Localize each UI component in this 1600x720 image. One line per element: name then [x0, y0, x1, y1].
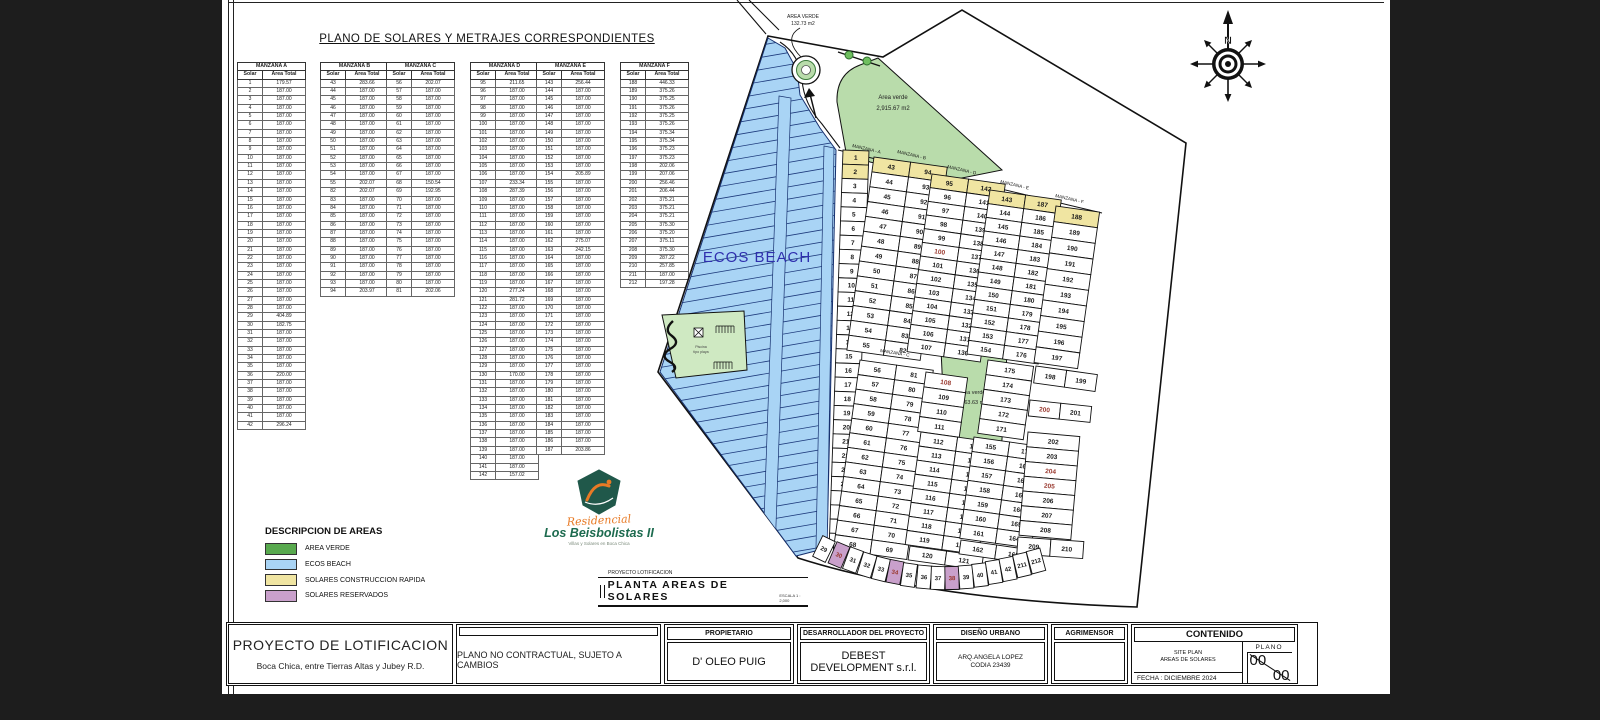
tree-icon — [845, 51, 853, 59]
lot-number: 208 — [1040, 527, 1052, 535]
lot-number: 44 — [885, 179, 894, 187]
lot-number: 70 — [887, 532, 896, 540]
lot-number: 3 — [853, 183, 857, 190]
lot-number: 66 — [853, 512, 862, 520]
lot-number: 203 — [1046, 453, 1058, 461]
lot-number: 98 — [939, 221, 948, 229]
lot-number: 73 — [893, 488, 902, 496]
lot-number: 77 — [902, 430, 911, 438]
lot-number: 92 — [920, 199, 929, 207]
lot-number: 86 — [907, 288, 916, 296]
lot-number: 74 — [895, 474, 904, 482]
lot-number: 99 — [937, 235, 946, 243]
manzana-column: 108109110111 — [918, 372, 968, 437]
lot-number: 43 — [887, 164, 896, 172]
lot-number: 1 — [854, 155, 858, 162]
lot-number: 204 — [1045, 468, 1057, 476]
lot-number: 118 — [921, 523, 933, 531]
lot-number: 200 — [1039, 406, 1051, 414]
pool-label-1: Piscina — [695, 345, 707, 349]
lot-number: 93 — [922, 184, 931, 192]
lot-number: 48 — [877, 238, 886, 246]
pool-label-2: tipo playa — [693, 350, 708, 354]
lot-number: 206 — [1042, 497, 1054, 505]
lot-number: 6 — [851, 226, 855, 233]
lot-number: 15 — [845, 353, 853, 360]
lot-number: 79 — [906, 401, 915, 409]
compass-north-label: N — [1224, 35, 1232, 47]
lot-number: 84 — [903, 318, 912, 326]
manzana-column: 202203204205206207208 — [1019, 432, 1080, 540]
pool-area: Piscina tipo playa — [662, 311, 747, 378]
lot-number: 90 — [915, 228, 924, 236]
lot-number: 63 — [859, 469, 868, 477]
site-plan-map: ECOS BEACH Piscina tipo playa Area verde… — [0, 0, 1600, 720]
lot-number: 202 — [1047, 438, 1059, 446]
lot-number: 83 — [901, 332, 910, 340]
green1-value: 2,915.67 m2 — [876, 106, 910, 112]
steps-icon — [714, 362, 732, 369]
tree-icon — [863, 57, 871, 65]
lot-number: 111 — [934, 424, 945, 432]
lot-number: 51 — [870, 283, 879, 291]
lot-number: 19 — [843, 410, 851, 417]
access-road-line — [737, 0, 766, 34]
lot-number: 113 — [931, 452, 943, 460]
manzana-column: 175174173172171 — [978, 360, 1034, 440]
lot-number: 36 — [920, 575, 928, 582]
lot-number: 112 — [933, 438, 945, 446]
lot-number: 85 — [905, 303, 914, 311]
lot-number: 39 — [963, 575, 971, 581]
lot-number: 46 — [881, 208, 890, 216]
lot-number: 64 — [857, 483, 866, 491]
area-verde-top-value: 132.73 m2 — [791, 21, 815, 27]
lot-number: 50 — [872, 268, 881, 276]
lot-number: 67 — [851, 527, 860, 535]
lot-number: 5 — [852, 212, 856, 219]
lot-number: 201 — [1070, 410, 1082, 418]
lot-number: 110 — [936, 409, 948, 417]
area-verde-top-label: AREA VERDE — [787, 14, 820, 20]
lot-number: 57 — [871, 381, 880, 389]
lot-number: 119 — [919, 537, 931, 545]
lot-number: 95 — [945, 180, 954, 188]
lot-number: 117 — [923, 509, 935, 517]
lot-number: 37 — [935, 576, 943, 582]
lot-number: 69 — [885, 547, 894, 555]
lot-number: 38 — [949, 576, 956, 582]
lot-number: 47 — [879, 223, 888, 231]
plan-sheet-stage: PLANO DE SOLARES Y METRAJES CORRESPONDIE… — [0, 0, 1600, 720]
ecos-beach-label: ECOS BEACH — [703, 249, 811, 266]
lot-number: 16 — [845, 368, 853, 375]
lot-number: 56 — [873, 367, 882, 375]
lot-number: 55 — [862, 342, 871, 350]
lot-number: 116 — [925, 494, 937, 502]
lot-number: 207 — [1041, 512, 1053, 520]
lot-number: 9 — [850, 268, 854, 275]
lot-number: 87 — [909, 273, 918, 281]
lot-number: 65 — [855, 498, 864, 506]
lot-number: 58 — [869, 396, 878, 404]
bottom-row-lot: 37 — [931, 566, 946, 589]
lot-number: 89 — [913, 243, 922, 251]
lot-number: 114 — [929, 466, 941, 474]
lot-number: 78 — [904, 415, 913, 423]
compass-rose-icon: N — [1190, 10, 1266, 102]
lot-number: 10 — [848, 282, 856, 289]
lot-number: 4 — [852, 197, 856, 204]
lot-number: 53 — [866, 312, 875, 320]
lot-number: 7 — [851, 240, 855, 247]
bottom-row-lot: 36 — [916, 565, 932, 589]
access-road-line — [749, 0, 779, 30]
lot-number: 18 — [844, 396, 852, 403]
lot-number: 94 — [924, 169, 933, 177]
lot-number: 52 — [868, 298, 877, 306]
steps-icon — [716, 326, 734, 333]
lot-number: 96 — [943, 194, 952, 202]
lot-number: 62 — [861, 454, 870, 462]
lot-number: 17 — [844, 382, 852, 389]
lot-number: 59 — [867, 410, 876, 418]
lot-number: 60 — [865, 425, 874, 433]
lot-number: 115 — [927, 480, 939, 488]
lot-number: 71 — [889, 517, 898, 525]
lot-number: 2 — [853, 169, 857, 176]
lot-number: 45 — [883, 194, 892, 202]
lot-number: 81 — [910, 372, 919, 380]
lot-number: 91 — [917, 214, 926, 222]
lot-number: 97 — [941, 208, 950, 216]
lot-number: 205 — [1044, 483, 1056, 491]
lot-number: 61 — [863, 439, 872, 447]
green1-label: Area verde — [878, 95, 908, 101]
lot-number: 80 — [908, 386, 917, 394]
lot-number: 54 — [864, 327, 873, 335]
bottom-row-lot: 39 — [958, 565, 974, 589]
lot-number: 20 — [843, 424, 851, 431]
lot-number: 210 — [1061, 546, 1073, 554]
lot-number: 76 — [900, 445, 909, 453]
lot-number: 72 — [891, 503, 900, 511]
bottom-row-lot: 35 — [900, 563, 917, 588]
lot-number: 49 — [875, 253, 884, 261]
lot-number: 75 — [897, 459, 906, 467]
lot-number: 88 — [911, 258, 920, 266]
lot-number: 8 — [850, 254, 854, 261]
bottom-row-lot: 38 — [945, 566, 959, 589]
